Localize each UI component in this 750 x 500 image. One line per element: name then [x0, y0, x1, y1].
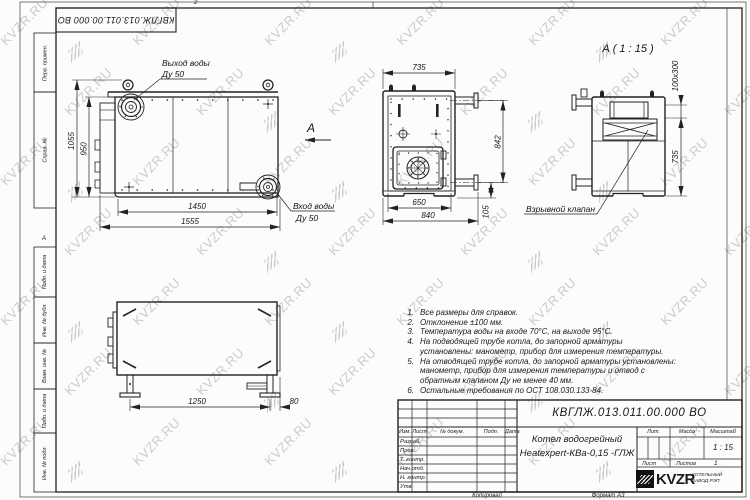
rev-header-data: Дата — [505, 429, 517, 435]
note-item: Отклонение ±100 мм. — [403, 318, 677, 328]
note-item: На отводящей трубе котла, до запорной ар… — [403, 357, 677, 386]
kvzr-logo-mark — [636, 470, 654, 488]
corner-stamp: КВГЛЖ.013.011.00.000 ВО — [56, 8, 176, 32]
kvzr-logo-text: KVZR — [656, 471, 695, 488]
role-nachotd: Нач.отд. — [400, 466, 424, 472]
stamp-vzam-inv: Взам. инв. № — [34, 343, 56, 389]
sheet-label: Лист — [642, 461, 656, 467]
stamp-podp-data-2: Подп. и дата — [34, 389, 56, 433]
role-tkontr: Т. контр. — [400, 457, 425, 463]
role-prov: Пров. — [400, 448, 415, 454]
role-nkontr: Н. контр. — [400, 475, 426, 481]
mass-label: Масса — [670, 429, 704, 435]
role-razrab: Разраб. — [400, 439, 421, 445]
text-layer: КВГЛЖ.013.011.00.000 ВО 2 А Перв. примен… — [0, 0, 750, 500]
technical-notes: Все размеры для справок. Отклонение ±100… — [403, 308, 677, 395]
drawing-page: KVZR.RUKVZR.RUKVZR.RUKVZR.RUKVZR.RUKVZR.… — [0, 0, 750, 500]
note-item: Температура воды на входе 70°С, на выход… — [403, 327, 677, 337]
stamp-inv-podl: Инв. № подл. — [34, 433, 56, 492]
zone-left-label: А — [42, 236, 46, 242]
doc-number: КВГЛЖ.013.011.00.000 ВО — [517, 400, 742, 427]
sheets-value: 1 — [714, 460, 718, 467]
rev-header-podp: Подп. — [477, 429, 505, 435]
stamp-perv-primen: Перв. примен. — [34, 33, 56, 92]
product-name-line1: Котел водогрейный — [519, 433, 635, 447]
rev-header-izm: Изм. — [398, 429, 412, 435]
note-item: Остальные требования по ОСТ 108.030.133-… — [403, 386, 677, 396]
scale-value: 1 : 15 — [704, 443, 742, 452]
product-name-line2: Heatexpert-КВа-0,15 -ГЛЖ — [519, 447, 635, 461]
copied-label: Копировал — [462, 493, 512, 499]
stamp-sprav-no: Справ. № — [34, 92, 56, 208]
sheets-label: Листов — [676, 461, 696, 467]
note-item: Все размеры для справок. — [403, 308, 677, 318]
stamp-inv-dubl: Инв. № дубл. — [34, 297, 56, 343]
scale-label: Масштаб — [704, 429, 742, 435]
lit-label: Лит. — [637, 429, 670, 435]
rev-header-doc: № докум. — [427, 429, 477, 435]
format-label: Формат А3 — [583, 493, 633, 499]
stamp-podp-data-1: Подп. и дата — [34, 247, 56, 297]
rev-header-list: Лист — [412, 429, 427, 435]
kvzr-logo-caption: КОТЕЛЬНЫЙ ЗАВОД РЭП — [692, 473, 722, 485]
zone-top-label: 2 — [194, 0, 197, 6]
product-name: Котел водогрейный Heatexpert-КВа-0,15 -Г… — [519, 433, 635, 461]
note-item: На подводящей трубе котла, до запорной а… — [403, 337, 677, 356]
role-utv: Утв. — [400, 484, 413, 490]
kvzr-logo-stripes-icon — [637, 475, 653, 484]
